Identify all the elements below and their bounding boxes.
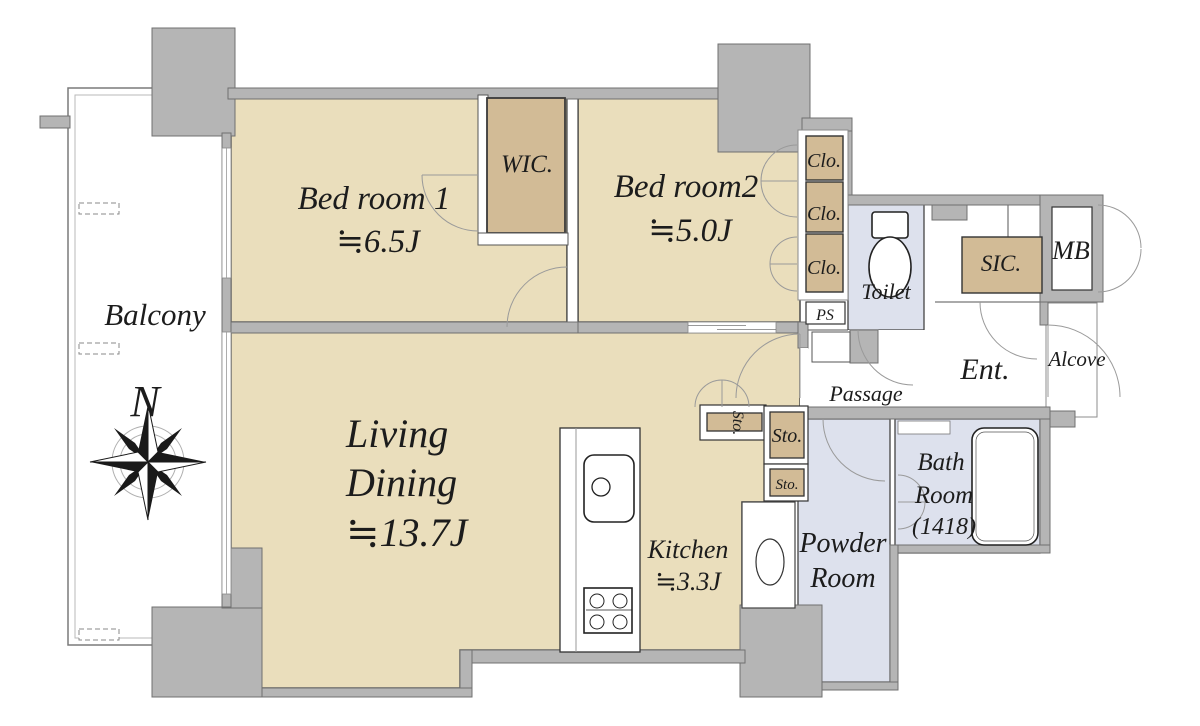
sto-large-label: Sto. [772, 425, 803, 447]
mb-door-arc-bottom [1098, 249, 1141, 292]
bedroom1-label: Bed room 1 [298, 181, 451, 217]
living-door-opening [800, 348, 808, 407]
mb-door-arc-top [1098, 205, 1141, 248]
kitchen-label: Kitchen [647, 535, 729, 564]
wall-notch [932, 205, 967, 220]
living-label-line1: Living [345, 411, 448, 456]
floor-plan: N Balcony Bed room 1 ≒6.5J WIC. Bed room… [0, 0, 1200, 726]
wall-living-bottom [260, 688, 472, 697]
powder-basin [756, 539, 784, 585]
wall-bath-bottom [890, 545, 1050, 553]
toilet-label: Toilet [861, 279, 911, 304]
wic-bottom-wall [478, 233, 568, 245]
wall-ent-right [1040, 302, 1048, 325]
wall-passage-chunk [850, 330, 878, 363]
bedroom2-label: Bed room2 [614, 169, 759, 205]
balcony-drain-2 [79, 343, 119, 354]
compass-north-label: N [129, 377, 162, 426]
wall-bath-right [1040, 419, 1050, 553]
kitchen-faucet [592, 478, 610, 496]
closet-2-label: Clo. [807, 203, 841, 225]
closet-1-label: Clo. [807, 150, 841, 172]
pillar-bottom-left [152, 607, 262, 697]
wall-powder-right [890, 545, 898, 690]
sic-label: SIC. [981, 251, 1021, 276]
living-label-line2: Dining [345, 460, 457, 505]
passage-label: Passage [828, 381, 903, 406]
alcove-label: Alcove [1046, 347, 1105, 371]
toilet-tank [872, 212, 908, 238]
balcony-partition-tick [40, 116, 70, 128]
powder-label-line2: Room [809, 563, 875, 594]
balcony-drain-3 [79, 629, 119, 640]
floor-plan-drawing: N Balcony Bed room 1 ≒6.5J WIC. Bed room… [0, 0, 1200, 726]
pillar-bottom-middle [740, 605, 822, 697]
mb-label: MB [1051, 236, 1090, 265]
bath-size: (1418) [912, 514, 976, 540]
wall-bedroom1-living [231, 322, 578, 333]
wic-label: WIC. [501, 151, 553, 178]
pillar-top-right [718, 44, 810, 152]
passage-counter [812, 332, 850, 362]
sto-side-label: Sto. [729, 411, 746, 435]
living-size: ≒13.7J [346, 510, 470, 555]
bath-label-line2: Room [914, 482, 973, 509]
balcony-drain-1 [79, 203, 119, 214]
bedroom2-size: ≒5.0J [648, 213, 733, 249]
bath-label-line1: Bath [917, 449, 964, 476]
balcony-label: Balcony [104, 297, 206, 332]
closet-3-label: Clo. [807, 257, 841, 279]
ent-label: Ent. [959, 353, 1009, 386]
powder-label-line1: Powder [798, 528, 886, 559]
bath-tub [972, 428, 1038, 545]
balcony-outline [68, 88, 230, 645]
ps-label: PS [815, 307, 834, 324]
balcony-area [40, 88, 230, 645]
bath-notch [898, 421, 950, 434]
bedroom-divider-wall [567, 95, 578, 325]
wall-passage-bottom [795, 407, 1050, 419]
pillar-top-left [152, 28, 235, 136]
bedroom1-size: ≒6.5J [336, 224, 421, 260]
sto-small-label: Sto. [776, 477, 799, 493]
living-dining-kitchen-floor [231, 322, 800, 688]
bedroom2-sliding-opening [688, 322, 776, 333]
kitchen-size: ≒3.3J [655, 567, 722, 596]
wall-top [228, 88, 722, 99]
